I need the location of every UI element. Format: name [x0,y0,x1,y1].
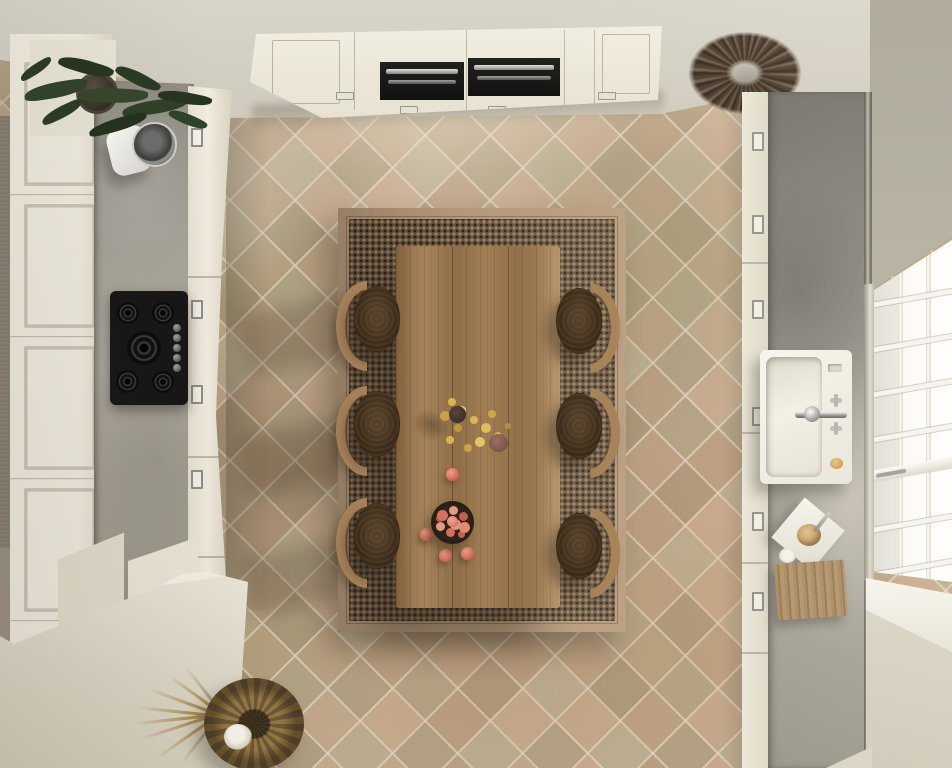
cabinet-handle [191,470,203,489]
apple [420,528,433,541]
dining-chair [536,272,620,372]
cabinet-handle [752,300,764,319]
faucet-handle [830,426,842,431]
plant-leaf [87,111,148,138]
hob-burner [152,371,174,393]
cabinet-handle [191,385,203,404]
white-flower [224,724,252,750]
cabinet-door-panel [602,34,650,94]
white-puff [779,548,796,563]
table-plank-seam [508,246,509,608]
chair-seat [556,288,602,354]
cabinet-seam [466,30,467,110]
cabinet-handle [598,92,616,100]
woven-basket [204,678,304,768]
dining-chair [332,375,416,475]
farmhouse-sink [760,350,852,484]
apple [439,549,452,562]
cabinet-seam [354,30,355,110]
kitchen-topdown-scene [0,0,952,768]
cabinet-seam [594,30,595,110]
apple [446,468,459,481]
plant-leaf [168,106,209,133]
apple [461,547,474,560]
hob-burner [116,370,139,393]
hob-knob [173,334,181,342]
chair-seat [354,286,400,352]
wall-oven [380,62,464,100]
cabinet-handle [336,92,354,100]
chair-seat [556,513,602,579]
plant-leaf [39,98,84,127]
dining-chair [536,377,620,477]
soap-dispenser [828,364,842,372]
mauve-seed-pod [489,434,508,452]
cabinet-door-panel [272,40,340,104]
hob-burner [117,302,139,324]
cabinet-handle [400,106,418,114]
bowl-apples [447,516,458,527]
hob-knob [173,364,181,372]
chair-seat [556,393,602,459]
window-frame [864,283,874,580]
chair-seat [354,503,400,569]
gas-hob [110,291,188,405]
soap-bar [830,458,843,469]
hob-knob [173,344,181,352]
wall-oven [468,58,560,96]
cabinet-handle [752,215,764,234]
faucet-base [804,406,820,422]
faucet-handle [830,398,842,403]
cabinet-handle [752,592,764,611]
hob-knob [173,324,181,332]
cabinet-handle [752,512,764,531]
dining-chair [332,270,416,370]
cabinet-handle [752,132,764,151]
cabinet-door-panel [24,204,96,328]
dried-flowers [448,398,456,406]
dark-vase [449,406,466,423]
potted-plant [18,48,218,168]
cutting-board [774,560,848,621]
dining-chair [332,487,416,587]
cabinet-door-panel [24,346,96,470]
chair-seat [354,391,400,457]
cabinet-seam [564,30,565,110]
plant-leaf [18,56,54,83]
dining-chair [536,497,620,597]
cabinet-handle [191,300,203,319]
hob-burner-large [127,331,161,365]
hob-burner [152,302,174,324]
hob-knob [173,354,181,362]
faucet-spout [795,412,847,418]
